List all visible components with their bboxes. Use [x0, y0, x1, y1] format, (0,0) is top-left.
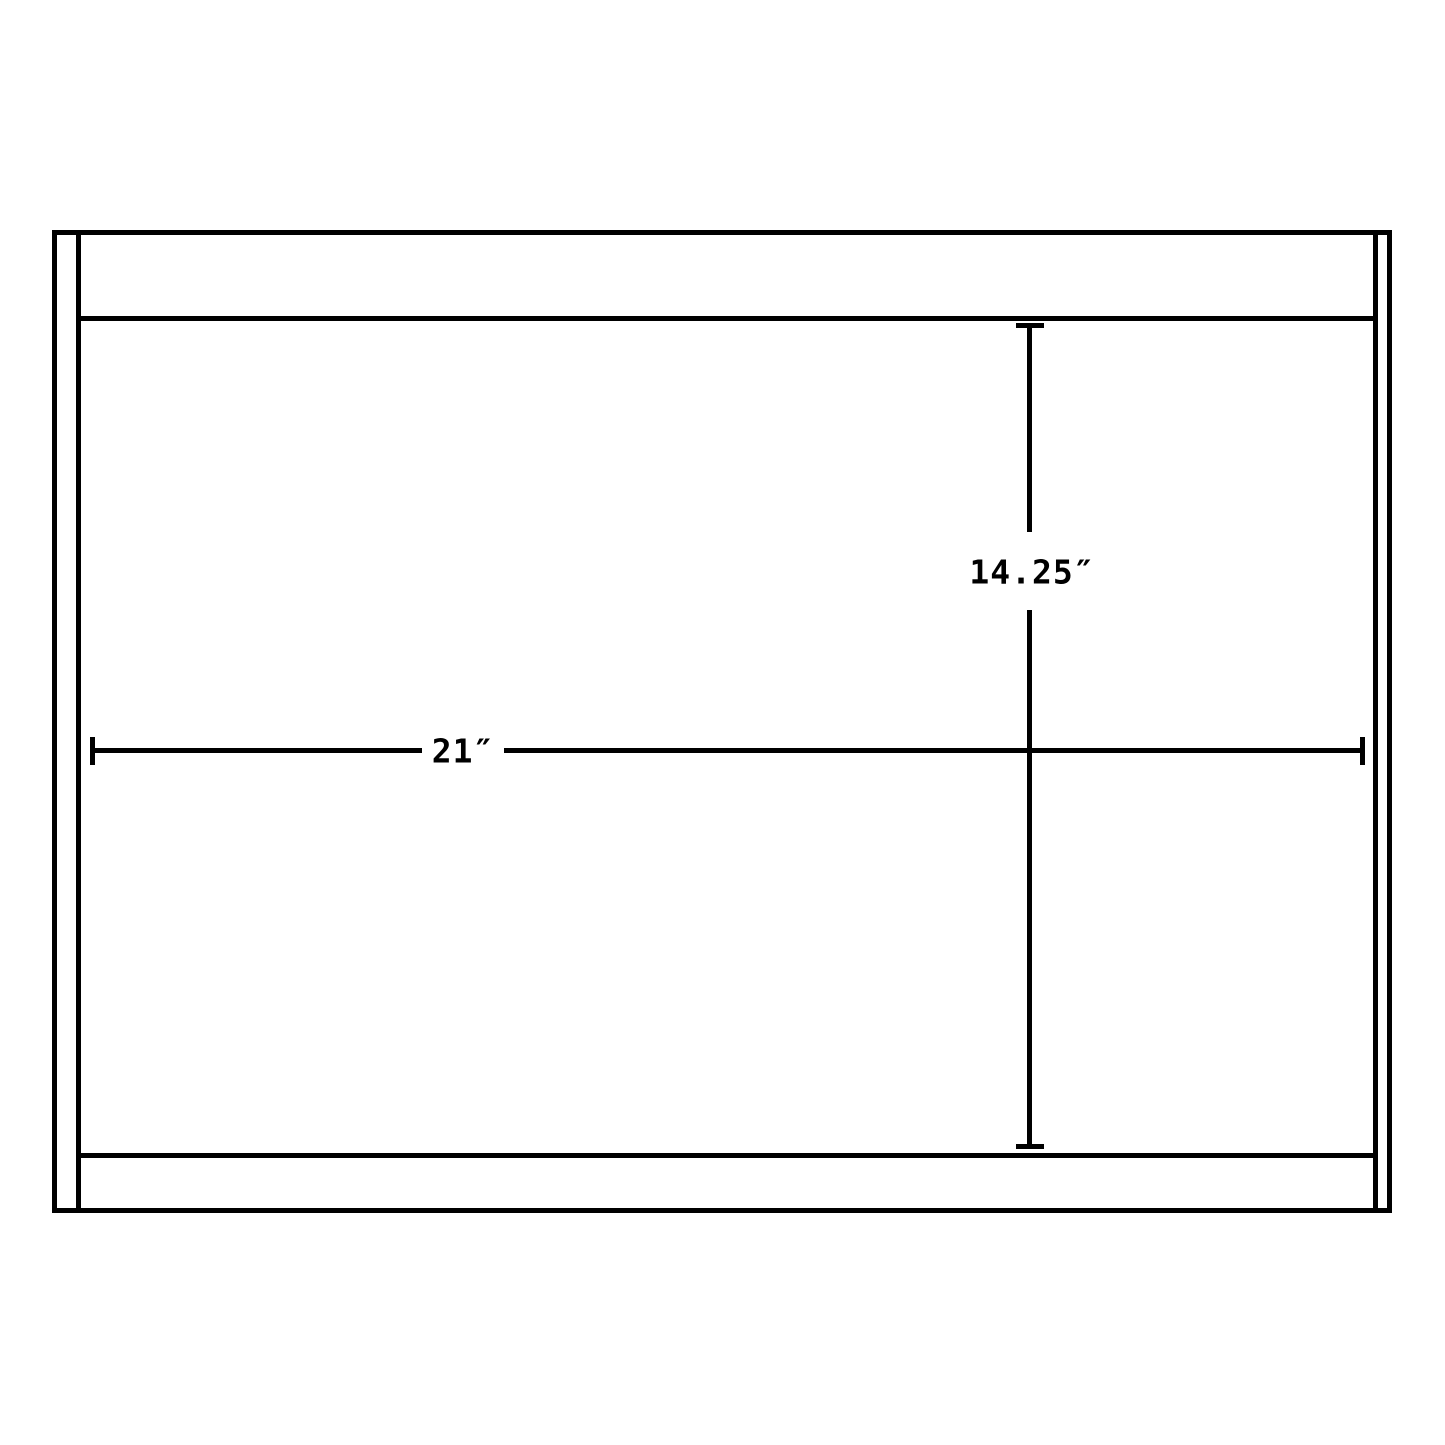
- height-dimension-bottom-tick: [1016, 1144, 1044, 1149]
- cabinet-outer-left-edge: [52, 230, 57, 1213]
- dimension-diagram: 21″ 14.25″: [0, 0, 1445, 1445]
- height-dimension-line-top-segment: [1027, 325, 1032, 532]
- height-dimension-top-tick: [1016, 323, 1044, 328]
- height-dimension-label: 14.25″: [969, 556, 1094, 589]
- width-dimension-line-left-segment: [92, 748, 422, 753]
- cabinet-left-stile-line: [76, 230, 81, 1213]
- cabinet-right-stile-line: [1373, 230, 1378, 1213]
- width-dimension-line-right-segment: [504, 748, 1364, 753]
- cabinet-top-rail-line: [78, 316, 1375, 321]
- width-dimension-left-tick: [90, 737, 95, 765]
- cabinet-bottom-rail-line: [78, 1153, 1375, 1158]
- width-dimension-label: 21″: [432, 735, 495, 768]
- cabinet-outer-right-edge: [1387, 230, 1392, 1213]
- cabinet-outer-bottom-edge: [52, 1208, 1392, 1213]
- width-dimension-right-tick: [1360, 737, 1365, 765]
- height-dimension-line-bottom-segment: [1027, 610, 1032, 1148]
- cabinet-outer-top-edge: [52, 230, 1392, 235]
